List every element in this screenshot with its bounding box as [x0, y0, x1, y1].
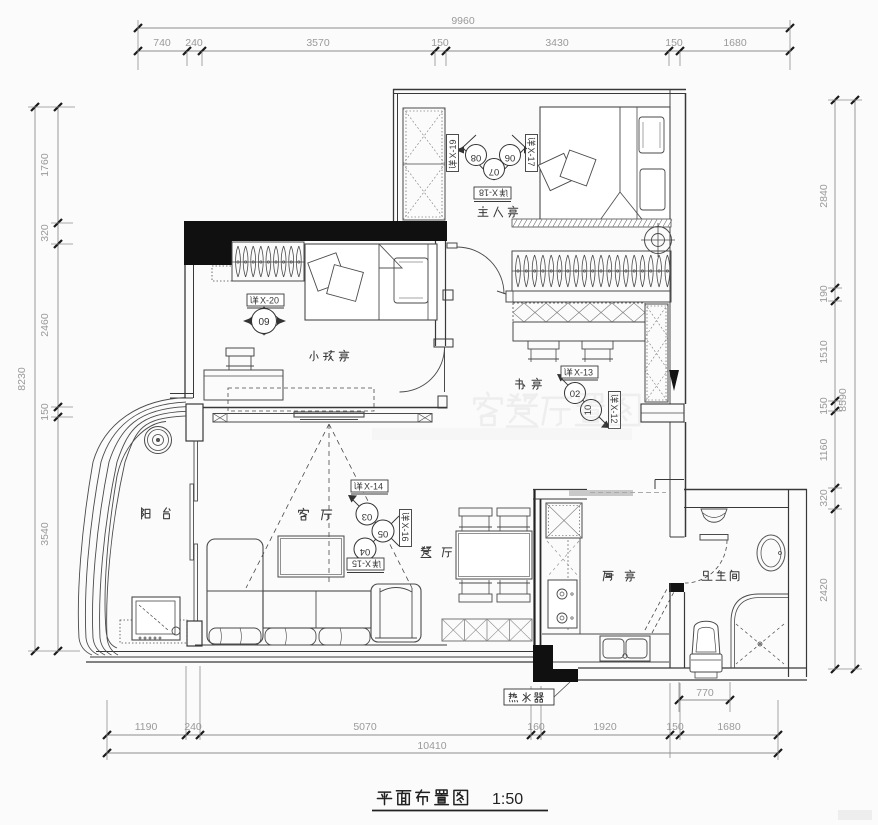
- svg-text:X-18: X-18: [479, 188, 498, 198]
- svg-text:150: 150: [666, 721, 684, 733]
- svg-text:X-15: X-15: [352, 559, 371, 569]
- svg-text:320: 320: [39, 224, 51, 242]
- svg-text:150: 150: [39, 403, 51, 421]
- svg-text:X-13: X-13: [574, 368, 593, 378]
- svg-text:240: 240: [184, 721, 202, 733]
- svg-text:2420: 2420: [818, 578, 830, 602]
- svg-text:150: 150: [818, 397, 830, 415]
- svg-text:8230: 8230: [16, 367, 28, 391]
- svg-text:2460: 2460: [39, 313, 51, 337]
- svg-text:03: 03: [362, 511, 373, 522]
- svg-text:190: 190: [818, 285, 830, 303]
- svg-text:07: 07: [489, 166, 500, 177]
- svg-text:1680: 1680: [717, 721, 741, 733]
- svg-text:240: 240: [185, 37, 203, 49]
- svg-text:05: 05: [378, 528, 389, 539]
- svg-text:320: 320: [818, 489, 830, 507]
- svg-text:3570: 3570: [306, 37, 330, 49]
- svg-text:1920: 1920: [593, 721, 617, 733]
- svg-text:X-20: X-20: [260, 296, 279, 306]
- svg-text:09: 09: [258, 317, 270, 328]
- svg-text:X-14: X-14: [364, 482, 383, 492]
- svg-text:9960: 9960: [451, 15, 475, 27]
- svg-text:1760: 1760: [39, 153, 51, 177]
- svg-text:1680: 1680: [723, 37, 747, 49]
- svg-text:X-19: X-19: [448, 139, 458, 158]
- svg-text:150: 150: [431, 37, 449, 49]
- svg-text:X-17: X-17: [526, 148, 536, 167]
- svg-text:160: 160: [527, 721, 545, 733]
- svg-text:1190: 1190: [135, 721, 158, 733]
- svg-text:1510: 1510: [818, 340, 830, 364]
- svg-text:1:50: 1:50: [492, 791, 523, 808]
- svg-text:06: 06: [505, 152, 516, 163]
- svg-text:5070: 5070: [353, 721, 377, 733]
- svg-text:8590: 8590: [837, 388, 849, 412]
- svg-text:1160: 1160: [818, 439, 830, 462]
- svg-text:770: 770: [696, 687, 714, 699]
- svg-text:740: 740: [153, 37, 171, 49]
- svg-text:04: 04: [360, 546, 371, 557]
- svg-text:2840: 2840: [818, 184, 830, 208]
- svg-text:08: 08: [471, 152, 482, 163]
- svg-text:3540: 3540: [39, 522, 51, 546]
- svg-text:150: 150: [665, 37, 683, 49]
- svg-text:3430: 3430: [545, 37, 569, 49]
- svg-text:10410: 10410: [417, 740, 446, 752]
- svg-text:X-16: X-16: [400, 523, 410, 542]
